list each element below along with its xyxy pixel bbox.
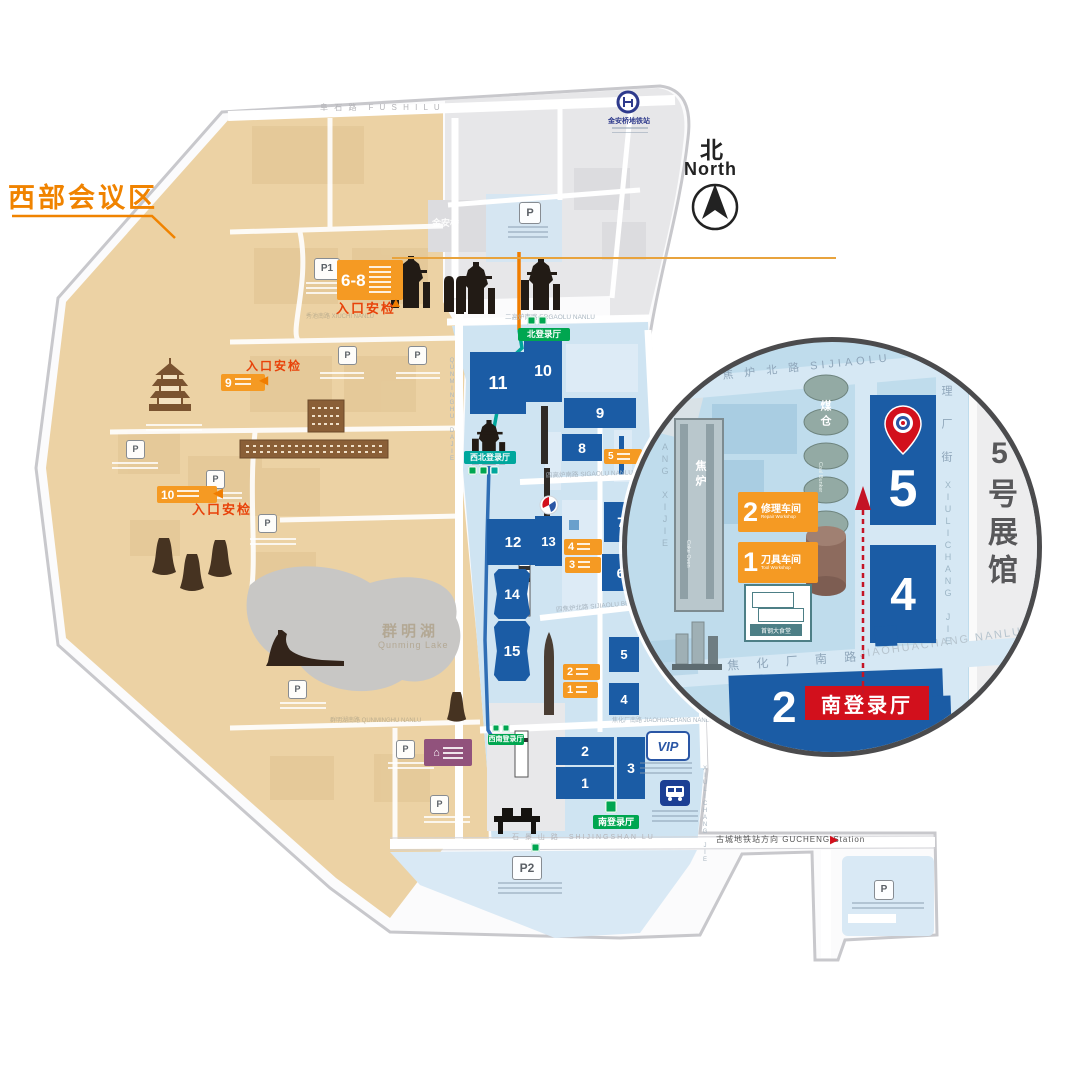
detail-inset-circle: 焦 炉 北 路 SIJIAOLU 理 厂 街 XIULICHANG JIE AN… [622, 337, 1042, 757]
gate-10-badge: 10 [157, 486, 217, 503]
micro-text [640, 762, 692, 774]
compass-icon [693, 184, 737, 229]
entrance-icon [468, 466, 477, 475]
canteen-detail [758, 608, 804, 622]
hall-12: 12 [487, 519, 539, 565]
coke-oven-zh: 焦炉 [692, 460, 708, 490]
micro-text [424, 816, 470, 826]
coke-oven-structure: 焦炉 Coke Oven [674, 418, 724, 612]
road-jiaohuachang: 焦化厂南路 JIAOHUACHANG NANLU [612, 718, 713, 724]
northwest-entry-badge: 西北登录厅 [464, 451, 516, 464]
location-pin-icon [883, 404, 923, 456]
inset-boundary-road [969, 337, 977, 757]
inset-building [712, 404, 797, 454]
parking-icon: P [408, 346, 427, 365]
coke-oven-detail [706, 424, 714, 599]
southwest-entry-badge: 西南登录厅 [488, 734, 524, 745]
micro-text [280, 702, 326, 712]
micro-text [577, 543, 590, 552]
security-check-label: 入口安检 [192, 503, 252, 516]
micro-text [396, 372, 440, 382]
entrance-icon [490, 466, 499, 475]
inset-workshop-1-badge: 1 刀具车间 Tool Workshop [738, 542, 818, 583]
micro-text [578, 561, 590, 570]
micro-text [177, 490, 199, 500]
canteen-detail [752, 592, 794, 608]
coke-oven-detail [680, 424, 688, 599]
hall-10: 10 [524, 341, 562, 402]
road-qunminghu-dajie: QUNMINGHU DAJIE [449, 358, 455, 463]
inset-street-right-zh: 理 厂 街 [940, 385, 951, 467]
hall-1: 1 [556, 767, 614, 799]
micro-text [498, 882, 562, 894]
hall-15: 15 [491, 621, 533, 681]
road-xiuchi: 秀池南路 XIUCHI NANLU [306, 314, 374, 320]
parking-icon: P [258, 514, 277, 533]
hall-14: 14 [491, 569, 533, 619]
entrance-icon [605, 800, 617, 813]
inset-street-left: ANG XIJIE [660, 442, 669, 550]
gucheng-direction-label: 古城地铁站方向 GUCHENG Station [716, 834, 865, 845]
venue-map: 西部会议区 阜 石 路 F U S H I L U 金安桥地铁站 北 North… [0, 0, 1070, 1070]
shuttle-bus-badge [660, 780, 690, 806]
canteen-building: 首钢大食堂 [744, 584, 812, 642]
road-xiulichang-jie: XIULICHANG JIE [702, 766, 708, 864]
workshop-5-badge: 5 [604, 449, 642, 464]
micro-text [652, 810, 698, 822]
micro-text [612, 127, 648, 133]
entrance-icon [538, 316, 547, 325]
entrance-icon [479, 466, 488, 475]
vip-badge: VIP [646, 731, 690, 761]
hall-2: 2 [556, 737, 614, 765]
inset-workshop-2-badge: 2 修理车间 Repair Workshop [738, 492, 818, 532]
parking-icon: P [396, 740, 415, 759]
bus-icon [660, 780, 690, 806]
hall-8: 8 [562, 434, 602, 461]
amenity-badge: ⌂ [424, 739, 472, 766]
inset-building-dark [875, 626, 898, 647]
parking-icon: P [338, 346, 357, 365]
micro-text [443, 747, 463, 759]
parking-icon: P [874, 880, 894, 900]
parking-icon: P [519, 202, 541, 224]
coal-bunker-en: Coal Bunker [817, 462, 823, 492]
subway-logo-icon [618, 92, 638, 112]
micro-text [235, 378, 251, 388]
arrow-right-icon: ▶ [830, 833, 838, 846]
micro-text [576, 686, 587, 695]
hall-11: 11 [470, 352, 526, 414]
inset-hall-gap [870, 525, 936, 545]
jinanqiao-station-label: 金安桥地铁站 [594, 116, 664, 126]
parking-icon: P [126, 440, 145, 459]
entrance-icon [492, 724, 500, 732]
entrance-icon [502, 724, 510, 732]
micro-text [576, 668, 588, 677]
arrow-up-icon: ▲ [389, 295, 403, 309]
workshop-4-badge: 4 [564, 539, 602, 555]
south-entry-badge: 南登录厅 [593, 815, 639, 829]
stop-icon [531, 843, 540, 852]
hall-9: 9 [564, 398, 636, 428]
micro-text [508, 226, 548, 238]
micro-text [112, 462, 158, 472]
workshop-2-badge: 2 [563, 664, 600, 680]
fair-logo-icon [540, 496, 558, 514]
workshop-1-badge: 1 [563, 682, 598, 698]
arrow-left-icon: ◀ [259, 374, 268, 386]
canteen-label: 首钢大食堂 [750, 624, 802, 636]
house-icon: ⌂ [433, 747, 440, 759]
inset-hall5-name: 5号展馆 [977, 437, 1021, 647]
parking-icon: P [288, 680, 307, 699]
inset-hall-2-number: 2 [772, 686, 796, 730]
road-fushi-lu: 阜 石 路 F U S H I L U [320, 104, 442, 112]
coke-oven-en: Coke Oven [685, 540, 691, 568]
coal-bunker-zh: 煤仓 [817, 400, 833, 430]
micro-text [320, 372, 364, 382]
parking-icon: P [430, 795, 449, 814]
micro-text [250, 538, 296, 548]
hall-13: 13 [535, 516, 562, 566]
jinanqiao-block-label: 金安桥 [432, 216, 459, 229]
micro-text [369, 266, 391, 294]
compass-en: North [684, 159, 737, 180]
road-qunminghu-nanlu: 群明湖南路 QUNMINGHU NANLU [330, 718, 421, 724]
workshop-3-badge: 3 [565, 557, 601, 573]
west-conference-label: 西部会议区 [8, 176, 158, 215]
entrance-icon [527, 316, 536, 325]
lake-label-zh: 群明湖 [382, 620, 439, 641]
arrow-left-icon: ◀ [213, 486, 223, 499]
micro-text [852, 902, 924, 912]
micro-text [146, 424, 202, 434]
road-ergaolu: 二高炉南路 ERGAOLU NANLU [505, 315, 595, 322]
chimney-cluster-icon [672, 614, 724, 672]
road-shijingshan: 石 景 山 路 SHIJINGSHAN LU [512, 834, 655, 841]
security-check-label: 入口安检 [246, 360, 302, 372]
lake-label-en: Qunming Lake [378, 640, 449, 650]
inset-south-entry-badge: 南登录厅 [805, 686, 929, 720]
inset-street-right-en: XIULICHANG JIE [943, 480, 952, 648]
micro-text [617, 453, 630, 461]
parking-p2-icon: P2 [512, 856, 542, 880]
north-entry-badge: 北登录厅 [518, 328, 570, 341]
